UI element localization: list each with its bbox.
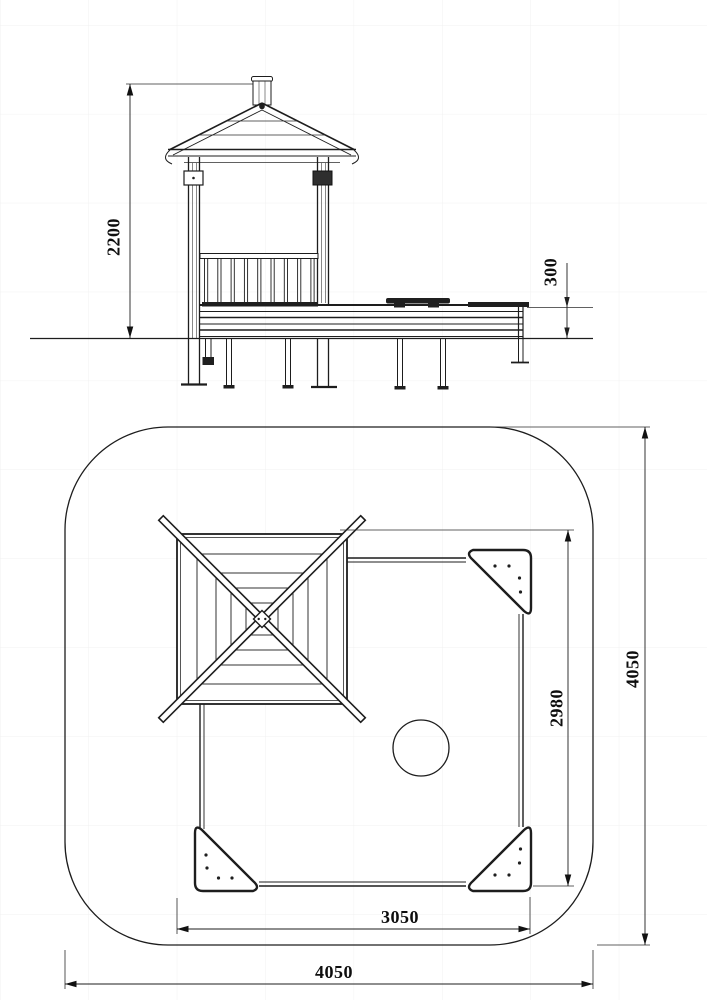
gazebo-finial (252, 77, 273, 106)
roof-apex-joint (259, 104, 265, 110)
dim-label-4050-bottom: 4050 (315, 962, 353, 982)
ground-anchor (203, 357, 215, 365)
dim-label-3050: 3050 (381, 907, 419, 927)
gazebo-railing (200, 254, 318, 307)
dim-label-2980: 2980 (546, 689, 566, 727)
technical-drawing: 2200 (0, 0, 707, 1000)
drawing-sheet: 2200 (0, 0, 707, 1000)
dim-label-2200: 2200 (103, 218, 123, 256)
gazebo-roof-plan (159, 516, 366, 723)
dim-label-300: 300 (540, 258, 560, 287)
dim-label-4050-right: 4050 (622, 650, 642, 688)
